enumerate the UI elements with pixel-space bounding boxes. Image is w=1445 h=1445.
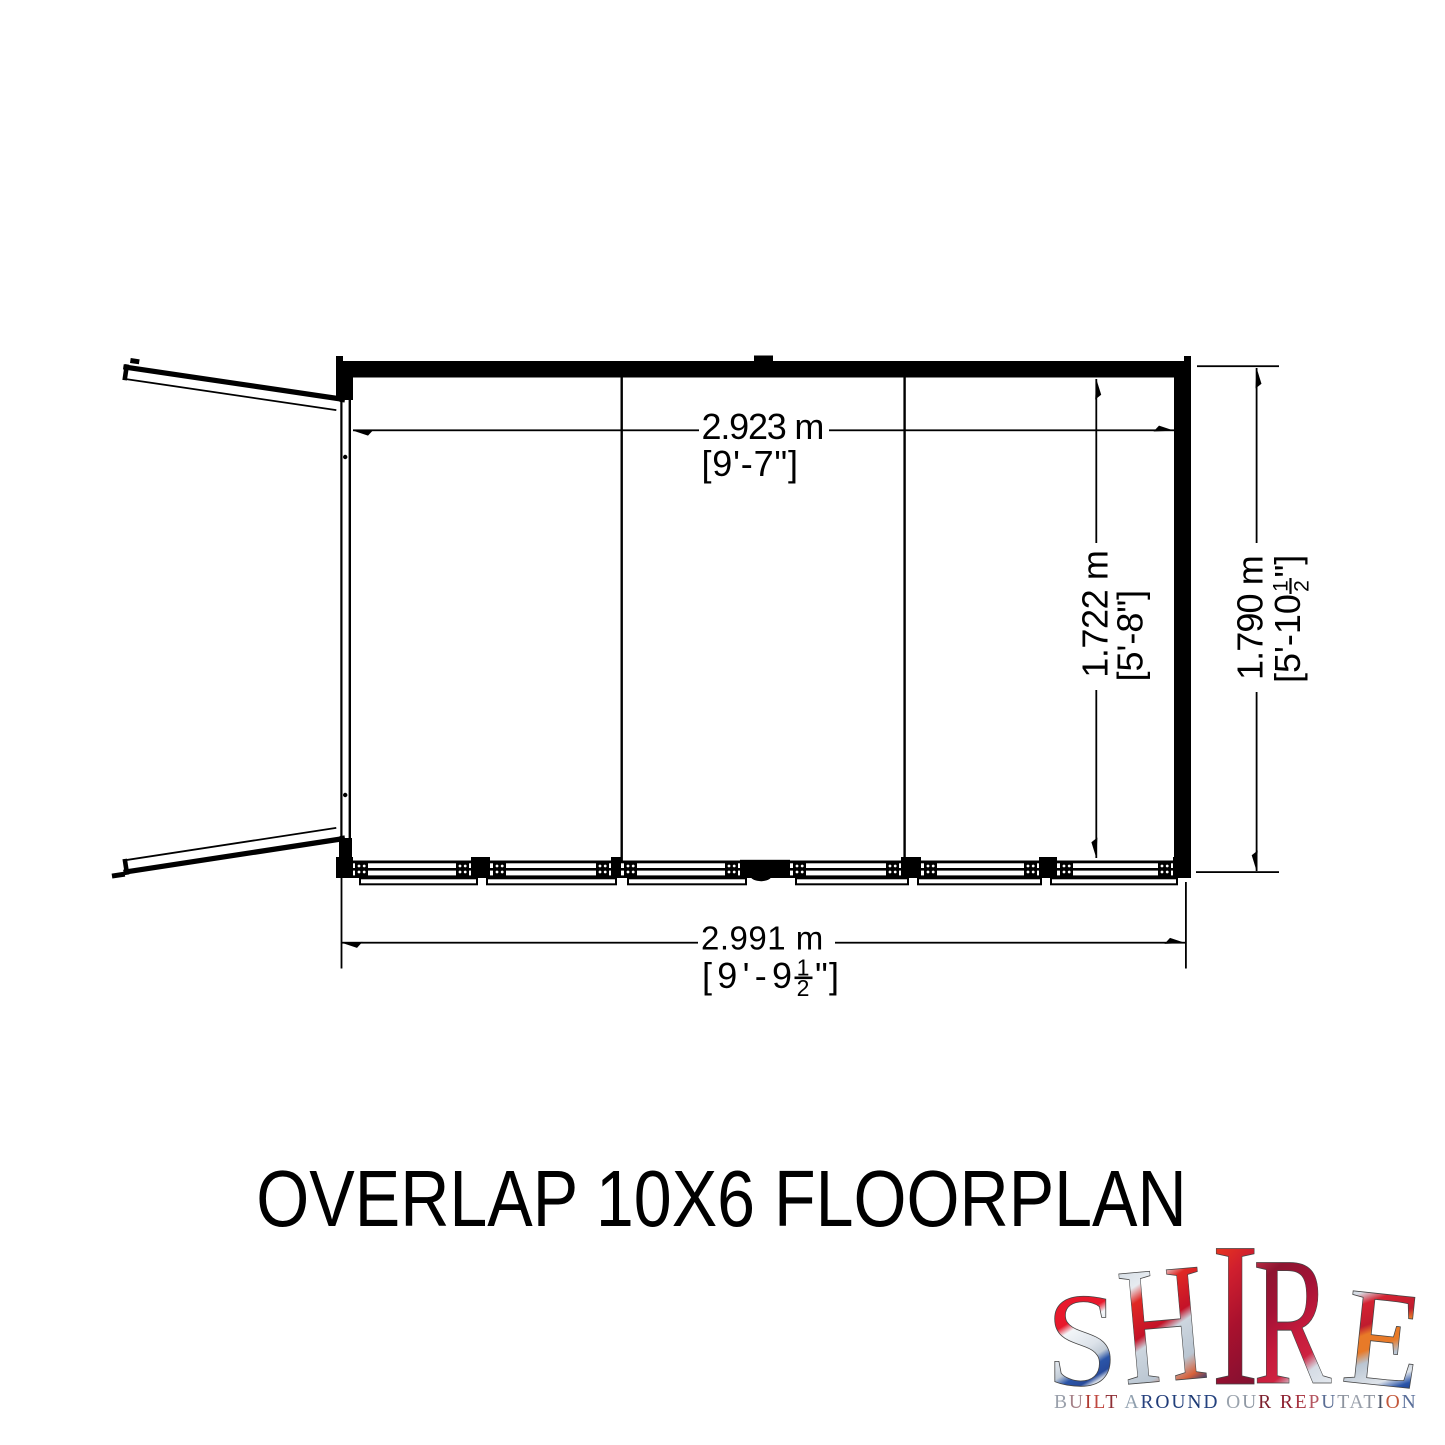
svg-text:2: 2 — [1290, 580, 1313, 592]
svg-text:"]: "] — [1267, 555, 1308, 578]
svg-text:2: 2 — [797, 975, 810, 1001]
svg-text:[5'-10: [5'-10 — [1267, 594, 1308, 683]
svg-text:[9'-7"]: [9'-7"] — [702, 443, 799, 484]
svg-text:1: 1 — [1270, 580, 1293, 592]
svg-text:2.991 m: 2.991 m — [701, 919, 824, 956]
svg-text:[5'-8"]: [5'-8"] — [1110, 590, 1151, 682]
svg-text:OVERLAP 10X6 FLOORPLAN: OVERLAP 10X6 FLOORPLAN — [256, 1154, 1186, 1243]
svg-text:"]: "] — [815, 955, 839, 996]
svg-text:2.923 m: 2.923 m — [702, 406, 824, 447]
svg-text:BUILT AROUND OUR REPUTATION: BUILT AROUND OUR REPUTATION — [1054, 1392, 1418, 1413]
svg-text:1.790 m: 1.790 m — [1230, 556, 1271, 680]
